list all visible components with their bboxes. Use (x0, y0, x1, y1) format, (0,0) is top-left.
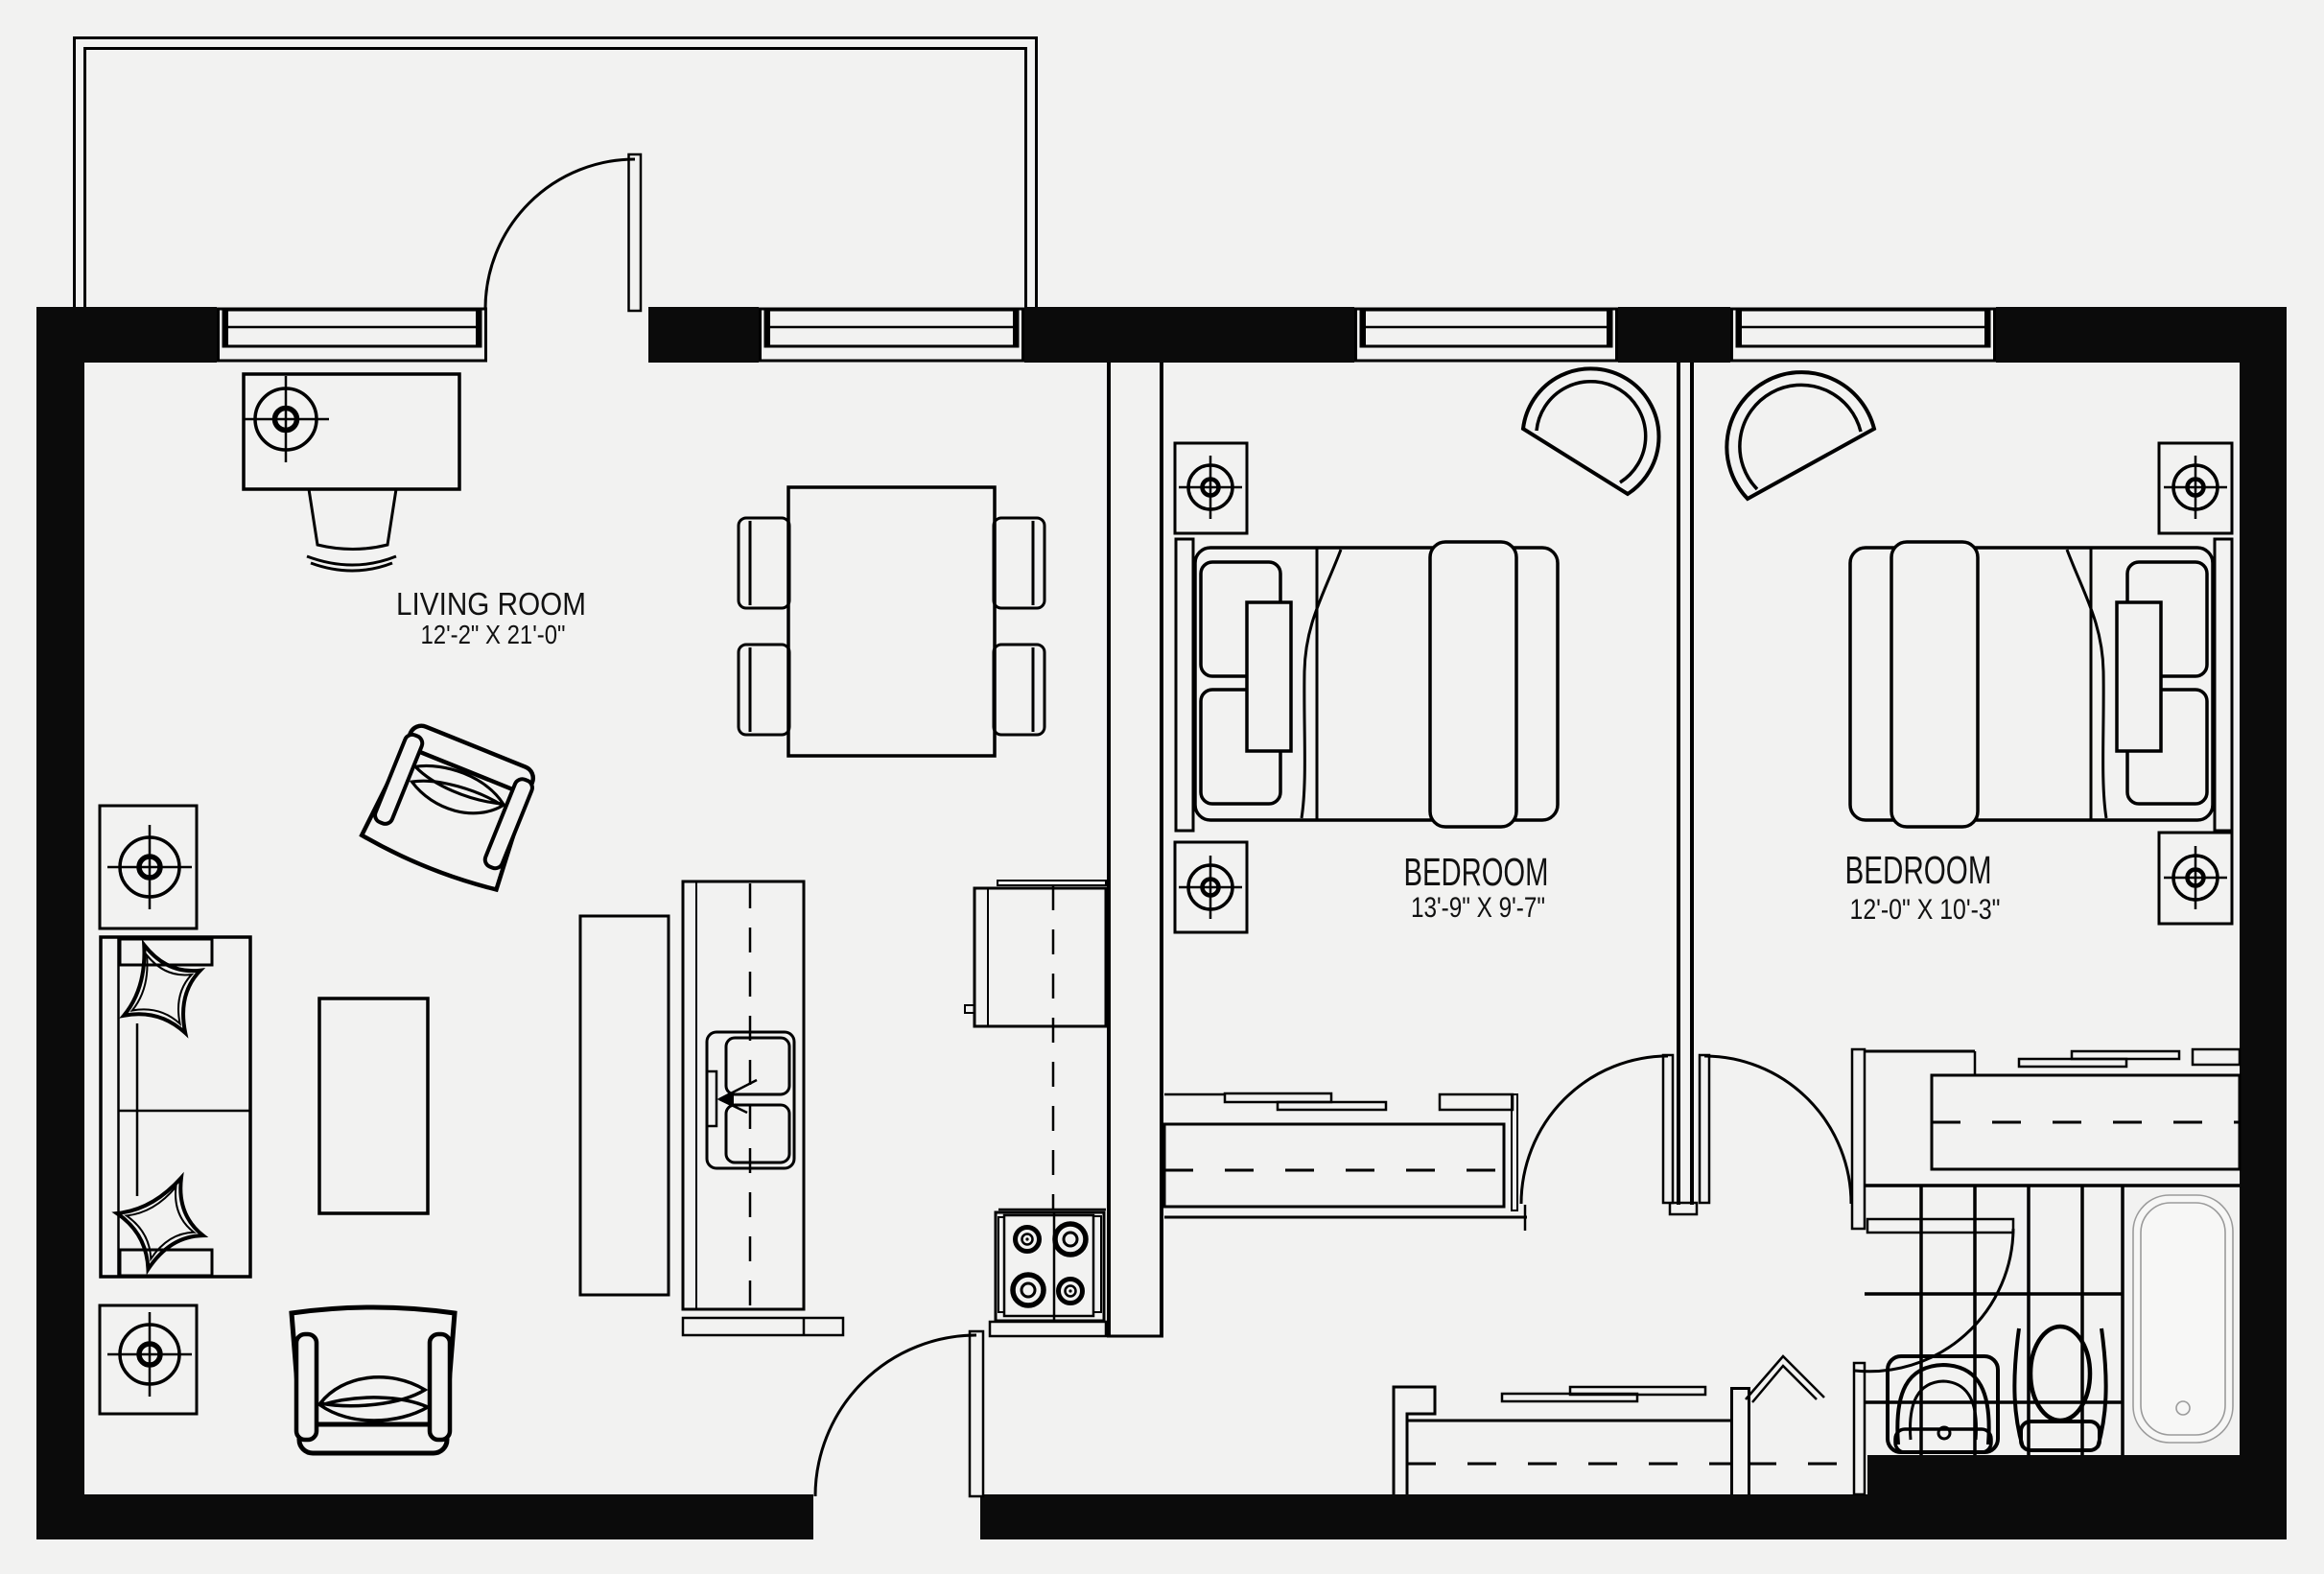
svg-text:12'-2" X 21'-0": 12'-2" X 21'-0" (421, 620, 566, 649)
svg-text:BEDROOM: BEDROOM (1404, 850, 1549, 894)
svg-text:BEDROOM: BEDROOM (1845, 848, 1992, 892)
svg-text:12'-0" X 10'-3": 12'-0" X 10'-3" (1850, 894, 2001, 926)
svg-text:13'-9" X 9'-7": 13'-9" X 9'-7" (1411, 892, 1545, 924)
svg-text:LIVING ROOM: LIVING ROOM (396, 586, 586, 622)
